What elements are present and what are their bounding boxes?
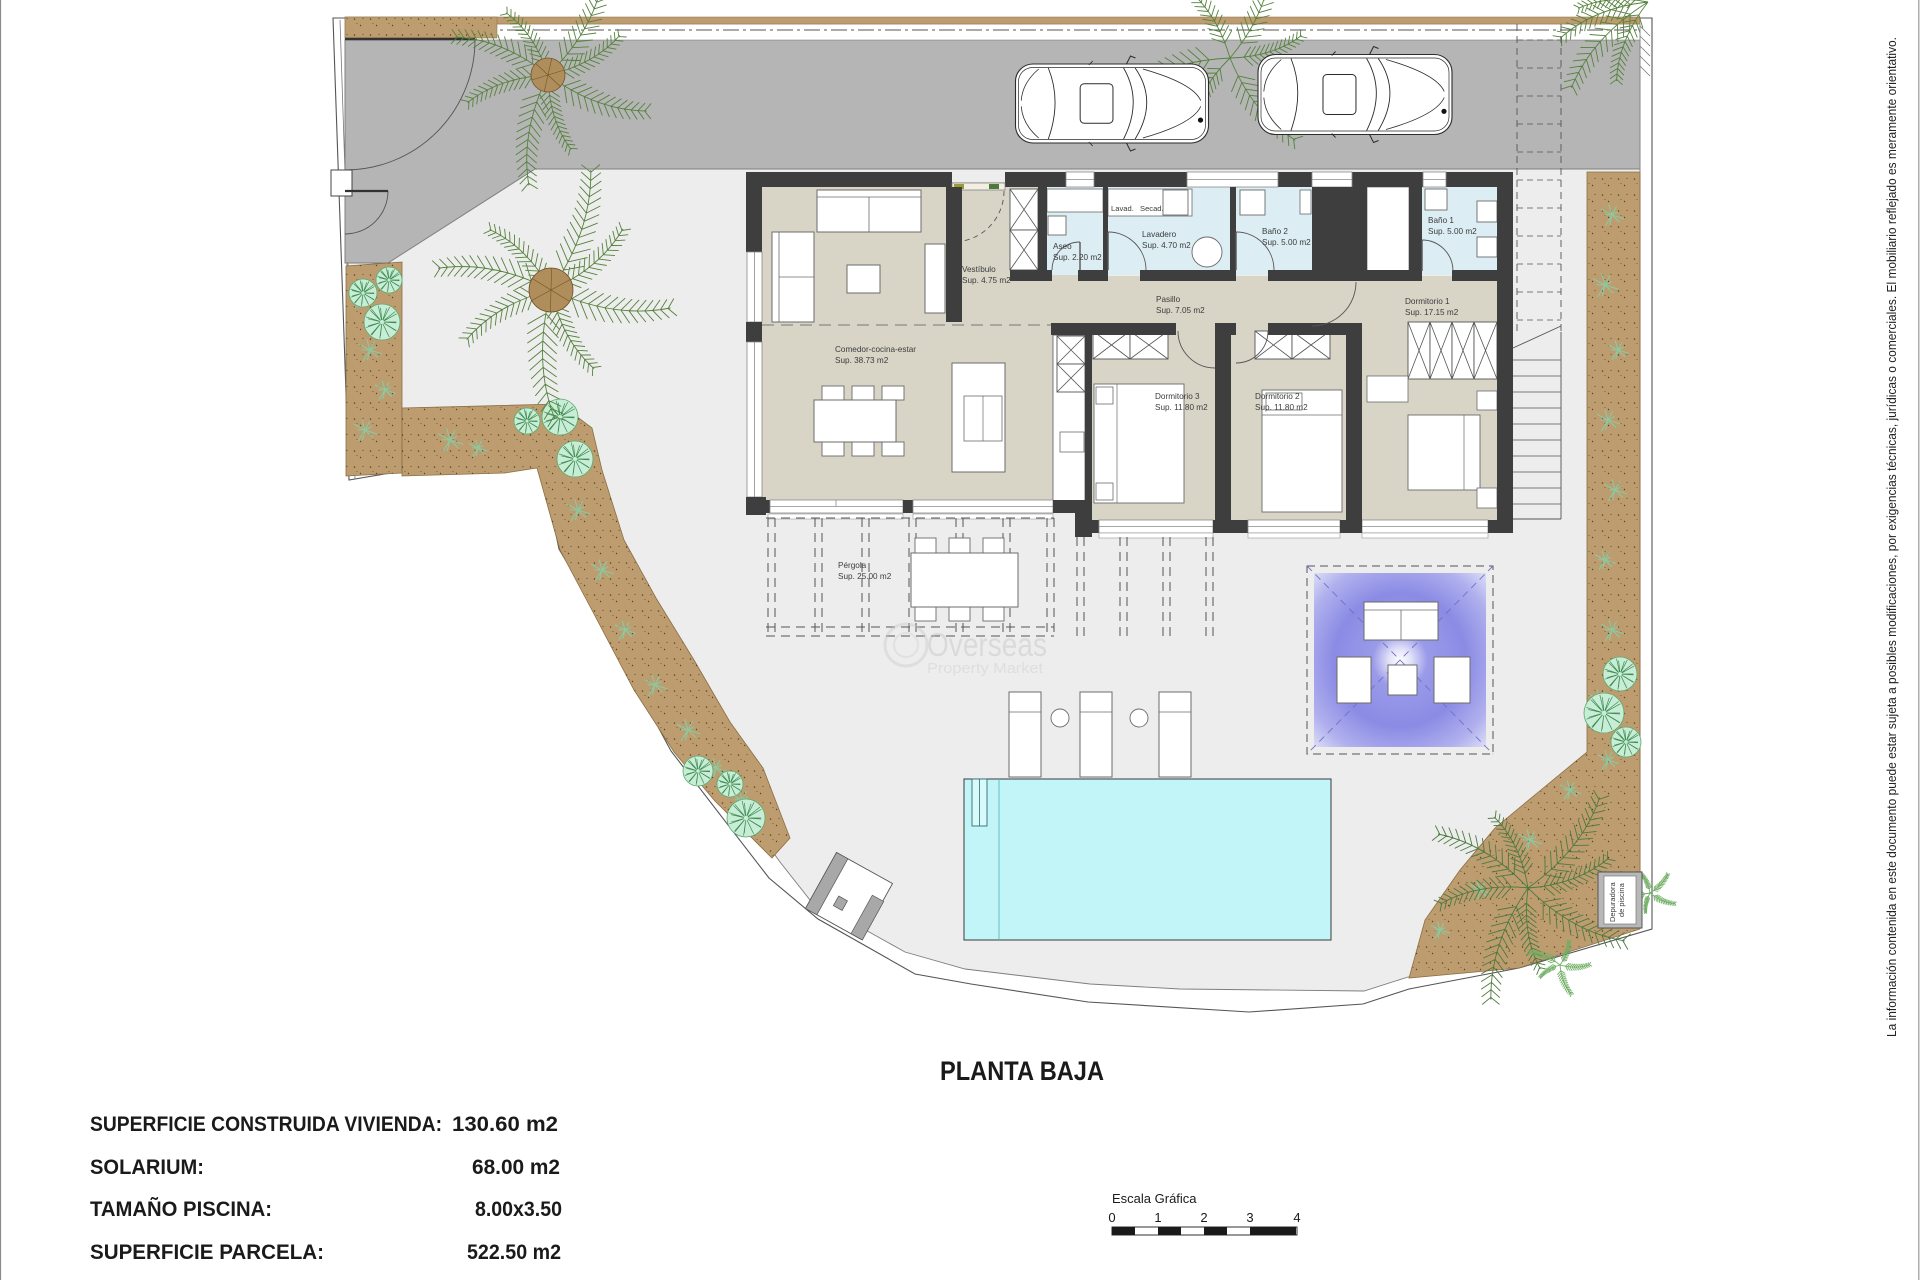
svg-text:Aseo: Aseo	[1053, 242, 1072, 251]
svg-text:8.00x3.50: 8.00x3.50	[475, 1197, 562, 1221]
svg-text:SUPERFICIE CONSTRUIDA VIVIENDA: SUPERFICIE CONSTRUIDA VIVIENDA:	[90, 1112, 442, 1136]
svg-text:Sup. 38.73 m2: Sup. 38.73 m2	[835, 356, 889, 365]
svg-text:Comedor-cocina-estar: Comedor-cocina-estar	[835, 345, 916, 354]
svg-text:Baño 2: Baño 2	[1262, 227, 1288, 236]
svg-text:de piscina: de piscina	[1617, 882, 1626, 917]
svg-text:1: 1	[1154, 1210, 1161, 1225]
svg-text:Sup. 2.20 m2: Sup. 2.20 m2	[1053, 253, 1102, 262]
svg-text:Sup. 4.70 m2: Sup. 4.70 m2	[1142, 241, 1191, 250]
svg-text:Secad.: Secad.	[1140, 204, 1164, 213]
svg-text:Lavad.: Lavad.	[1111, 204, 1134, 213]
svg-text:Sup. 25.00 m2: Sup. 25.00 m2	[838, 572, 892, 581]
svg-text:Baño 1: Baño 1	[1428, 216, 1454, 225]
svg-text:Sup. 4.75 m2: Sup. 4.75 m2	[962, 276, 1011, 285]
svg-text:0: 0	[1108, 1210, 1115, 1225]
svg-text:Sup. 17.15 m2: Sup. 17.15 m2	[1405, 308, 1459, 317]
svg-text:Escala Gráfica: Escala Gráfica	[1112, 1191, 1197, 1206]
svg-text:Lavadero: Lavadero	[1142, 230, 1177, 239]
svg-text:Depuradora: Depuradora	[1608, 882, 1617, 922]
svg-text:522.50 m2: 522.50 m2	[467, 1240, 561, 1264]
svg-text:Sup. 5.00 m2: Sup. 5.00 m2	[1262, 238, 1311, 247]
svg-text:Overseas: Overseas	[927, 626, 1047, 663]
svg-text:Pasillo: Pasillo	[1156, 295, 1181, 304]
svg-text:La información contenida en es: La información contenida en este documen…	[1884, 37, 1899, 1037]
svg-text:Property Market: Property Market	[927, 661, 1043, 677]
svg-text:Dormitorio 3: Dormitorio 3	[1155, 392, 1200, 401]
svg-text:TAMAÑO PISCINA:: TAMAÑO PISCINA:	[90, 1196, 272, 1221]
svg-text:Sup. 7.05 m2: Sup. 7.05 m2	[1156, 306, 1205, 315]
svg-text:SUPERFICIE PARCELA:: SUPERFICIE PARCELA:	[90, 1240, 324, 1264]
svg-text:Sup. 11.80 m2: Sup. 11.80 m2	[1155, 403, 1208, 412]
svg-text:130.60 m2: 130.60 m2	[452, 1112, 558, 1136]
svg-text:Sup. 5.00 m2: Sup. 5.00 m2	[1428, 227, 1477, 236]
svg-text:4: 4	[1293, 1210, 1300, 1225]
svg-text:SOLARIUM:: SOLARIUM:	[90, 1155, 204, 1179]
svg-text:Dormitorio 2: Dormitorio 2	[1255, 392, 1300, 401]
svg-text:Sup. 11.80 m2: Sup. 11.80 m2	[1255, 403, 1308, 412]
svg-text:68.00 m2: 68.00 m2	[472, 1155, 560, 1179]
svg-text:PLANTA BAJA: PLANTA BAJA	[940, 1056, 1104, 1086]
svg-text:2: 2	[1200, 1210, 1207, 1225]
svg-text:Dormitorio 1: Dormitorio 1	[1405, 297, 1450, 306]
svg-text:3: 3	[1246, 1210, 1253, 1225]
svg-text:Vestíbulo: Vestíbulo	[962, 265, 996, 274]
